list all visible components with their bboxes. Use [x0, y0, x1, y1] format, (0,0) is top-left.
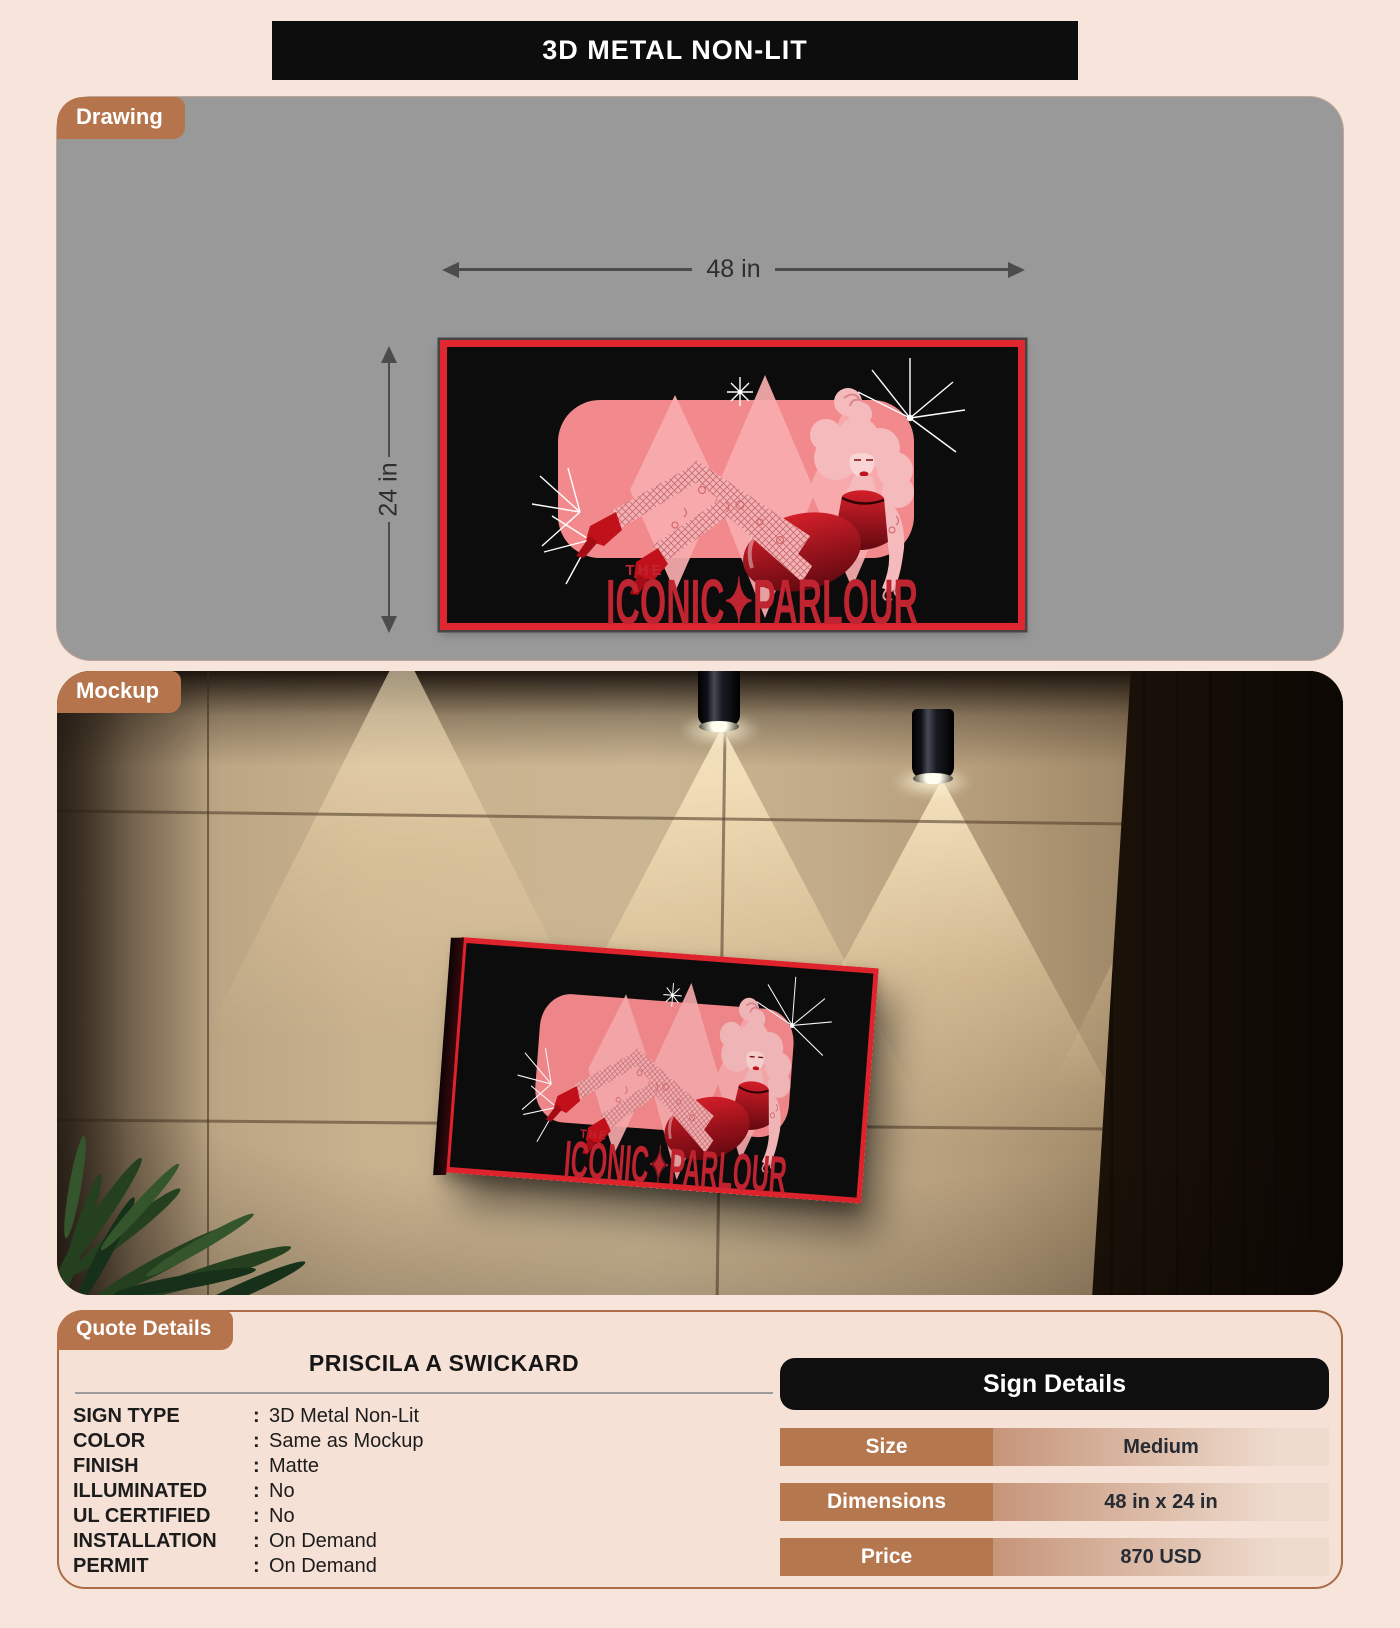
field-value: No: [269, 1479, 424, 1504]
height-dimension: 24 in: [362, 346, 416, 633]
table-row: Price 870 USD: [780, 1538, 1329, 1576]
field-colon: :: [253, 1429, 269, 1454]
arrow-up-icon: [381, 346, 397, 363]
row-value: 48 in x 24 in: [993, 1483, 1329, 1521]
spotlight-fixture: [912, 709, 954, 779]
drawing-tag: Drawing: [57, 97, 185, 139]
height-label: 24 in: [375, 462, 404, 516]
field-value: No: [269, 1504, 424, 1529]
field-label: UL CERTIFIED: [73, 1504, 253, 1529]
field-label: INSTALLATION: [73, 1529, 253, 1554]
arrow-left-icon: [442, 262, 459, 278]
quote-field-row: ILLUMINATED : No: [73, 1479, 424, 1504]
plant: [57, 1067, 380, 1295]
width-dimension: 48 in: [442, 255, 1025, 284]
field-label: ILLUMINATED: [73, 1479, 253, 1504]
row-value: Medium: [993, 1428, 1329, 1466]
arrow-down-icon: [381, 616, 397, 633]
field-label: SIGN TYPE: [73, 1404, 253, 1429]
quote-details-panel: Quote Details PRISCILA A SWICKARD SIGN T…: [57, 1310, 1343, 1589]
field-colon: :: [253, 1529, 269, 1554]
field-colon: :: [253, 1479, 269, 1504]
field-label: PERMIT: [73, 1554, 253, 1579]
field-colon: :: [253, 1404, 269, 1429]
quote-field-row: INSTALLATION : On Demand: [73, 1529, 424, 1554]
mounted-sign: [444, 937, 879, 1204]
row-value: 870 USD: [993, 1538, 1329, 1576]
field-value: On Demand: [269, 1554, 424, 1579]
page-title: 3D METAL NON-LIT: [542, 35, 808, 66]
row-label: Dimensions: [780, 1483, 993, 1521]
field-value: On Demand: [269, 1529, 424, 1554]
row-label: Size: [780, 1428, 993, 1466]
quote-field-row: COLOR : Same as Mockup: [73, 1429, 424, 1454]
sign-details-table: Sign Details Size Medium Dimensions 48 i…: [780, 1358, 1329, 1593]
field-label: COLOR: [73, 1429, 253, 1454]
table-row: Size Medium: [780, 1428, 1329, 1466]
mockup-panel: Mockup: [57, 671, 1343, 1295]
quote-fields: SIGN TYPE : 3D Metal Non-Lit COLOR : Sam…: [73, 1404, 424, 1579]
divider: [75, 1392, 773, 1394]
quote-field-row: PERMIT : On Demand: [73, 1554, 424, 1579]
field-value: Matte: [269, 1454, 424, 1479]
mockup-tag: Mockup: [57, 671, 181, 713]
field-label: FINISH: [73, 1454, 253, 1479]
field-colon: :: [253, 1454, 269, 1479]
arrow-right-icon: [1008, 262, 1025, 278]
field-value: Same as Mockup: [269, 1429, 424, 1454]
sign-drawing: [440, 340, 1025, 630]
width-label: 48 in: [706, 255, 760, 284]
field-colon: :: [253, 1504, 269, 1529]
quote-details-tag: Quote Details: [57, 1310, 233, 1350]
drawing-panel: Drawing 48 in 24 in: [57, 97, 1343, 660]
row-label: Price: [780, 1538, 993, 1576]
quote-field-row: UL CERTIFIED : No: [73, 1504, 424, 1529]
field-value: 3D Metal Non-Lit: [269, 1404, 424, 1429]
quote-field-row: FINISH : Matte: [73, 1454, 424, 1479]
sign-details-header: Sign Details: [780, 1358, 1329, 1410]
spotlight-fixture: [698, 671, 740, 727]
quote-sheet-page: THE ICONIC✦PARLOUR 3D METAL NON-LIT Draw…: [0, 0, 1400, 1628]
customer-name: PRISCILA A SWICKARD: [99, 1350, 789, 1377]
field-colon: :: [253, 1554, 269, 1579]
quote-field-row: SIGN TYPE : 3D Metal Non-Lit: [73, 1404, 424, 1429]
table-row: Dimensions 48 in x 24 in: [780, 1483, 1329, 1521]
title-bar: 3D METAL NON-LIT: [272, 21, 1078, 80]
